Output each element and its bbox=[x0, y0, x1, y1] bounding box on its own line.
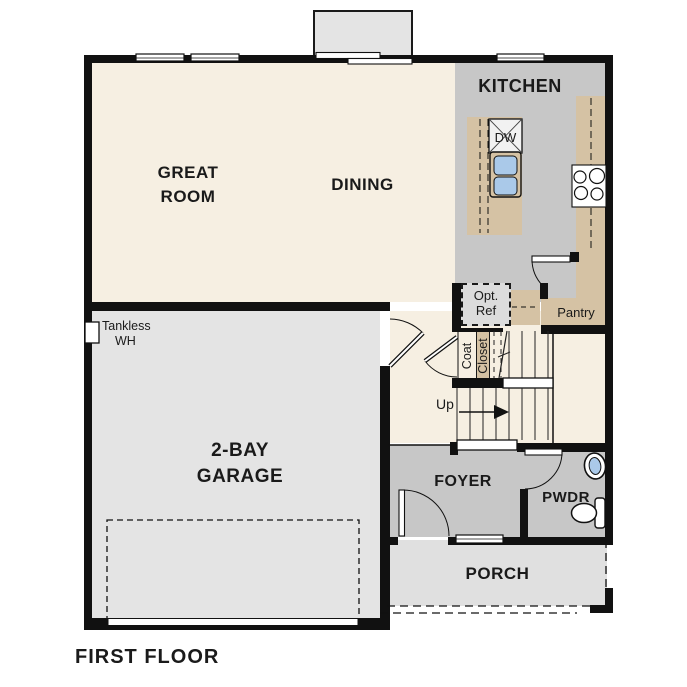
closet-label: Closet bbox=[476, 338, 490, 373]
tankless-label: Tankless WH bbox=[102, 319, 158, 349]
window-greatroom-1 bbox=[136, 54, 184, 61]
door-pwdr bbox=[525, 449, 562, 489]
kitchen-label: KITCHEN bbox=[460, 76, 580, 97]
door-garage-entry bbox=[390, 319, 423, 366]
sliding-door-icon bbox=[316, 53, 412, 65]
door-front-entry bbox=[399, 490, 449, 536]
door-pantry bbox=[532, 256, 570, 286]
coat-label: Coat bbox=[460, 343, 474, 369]
pwdr-label: PWDR bbox=[536, 489, 596, 506]
door-coat-closet bbox=[425, 337, 457, 377]
opt-ref-label: Opt. Ref bbox=[463, 288, 509, 318]
foyer-label: FOYER bbox=[420, 473, 506, 491]
great-room-label: GREAT ROOM bbox=[120, 161, 256, 209]
bathroom-sink-icon bbox=[583, 452, 607, 481]
porch-label: PORCH bbox=[450, 564, 545, 584]
pantry-label: Pantry bbox=[545, 305, 607, 320]
dw-label: DW bbox=[489, 130, 522, 145]
first-floor-plan: GREAT ROOM DINING KITCHEN 2-BAY GARAGE F… bbox=[0, 0, 687, 687]
tankless-water-heater-icon bbox=[85, 322, 99, 343]
up-label: Up bbox=[430, 396, 460, 412]
window-foyer bbox=[456, 535, 503, 543]
up-arrow-icon bbox=[459, 405, 509, 419]
dining-label: DINING bbox=[320, 175, 405, 195]
garage-door-dashed bbox=[107, 520, 359, 626]
garage-label: 2-BAY GARAGE bbox=[170, 438, 310, 490]
window-kitchen bbox=[497, 54, 544, 61]
page-title: FIRST FLOOR bbox=[75, 646, 219, 669]
window-greatroom-2 bbox=[191, 54, 239, 61]
cooktop-icon bbox=[572, 165, 606, 207]
kitchen-sink-icon bbox=[490, 152, 521, 197]
